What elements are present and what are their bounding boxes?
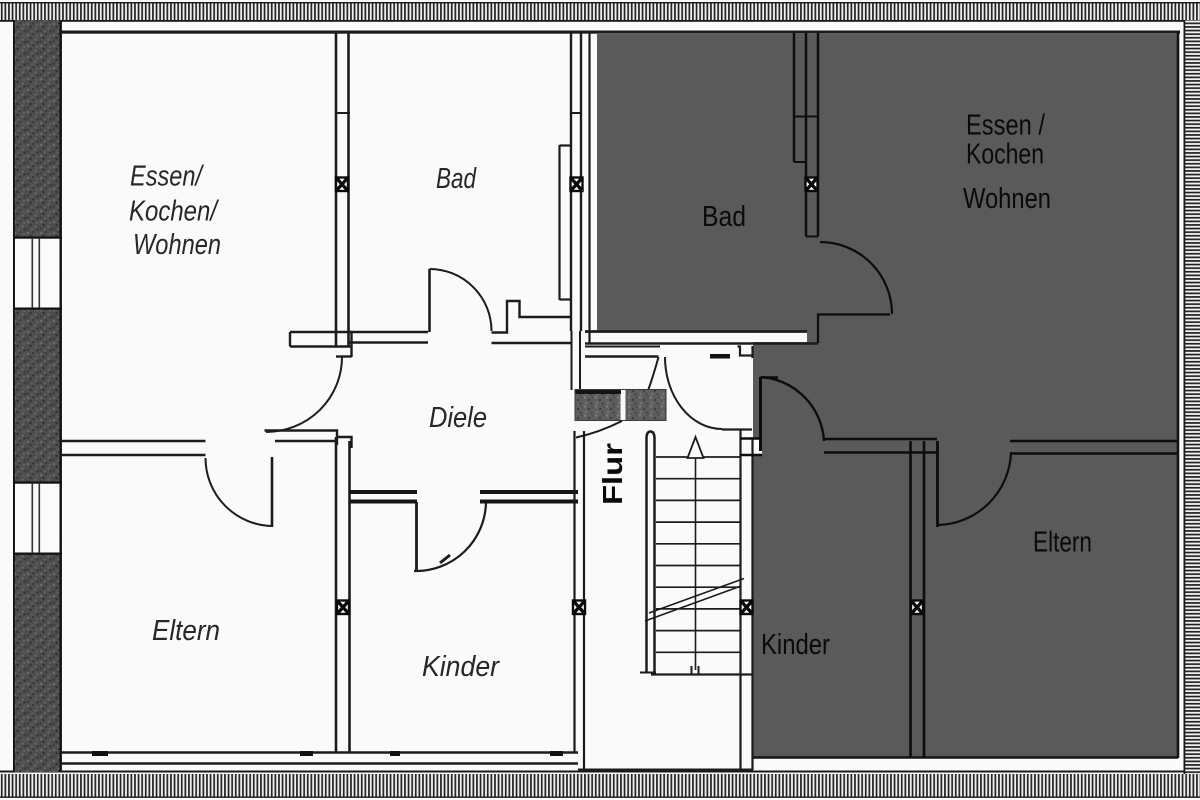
- svg-text:Kinder: Kinder: [761, 629, 830, 661]
- svg-text:Eltern: Eltern: [152, 615, 220, 647]
- svg-text:Wohnen: Wohnen: [963, 183, 1051, 215]
- svg-text:Bad: Bad: [702, 201, 746, 233]
- svg-text:Kochen: Kochen: [966, 139, 1044, 171]
- svg-text:Kinder: Kinder: [422, 651, 500, 683]
- svg-text:Wohnen: Wohnen: [133, 229, 221, 261]
- svg-text:Flur: Flur: [597, 443, 628, 505]
- svg-text:Diele: Diele: [429, 402, 487, 434]
- svg-text:Kochen/: Kochen/: [129, 196, 219, 228]
- svg-text:Essen/: Essen/: [130, 161, 204, 193]
- svg-text:Eltern: Eltern: [1033, 527, 1092, 559]
- svg-text:Essen /: Essen /: [966, 110, 1046, 142]
- svg-text:Bad: Bad: [436, 163, 477, 195]
